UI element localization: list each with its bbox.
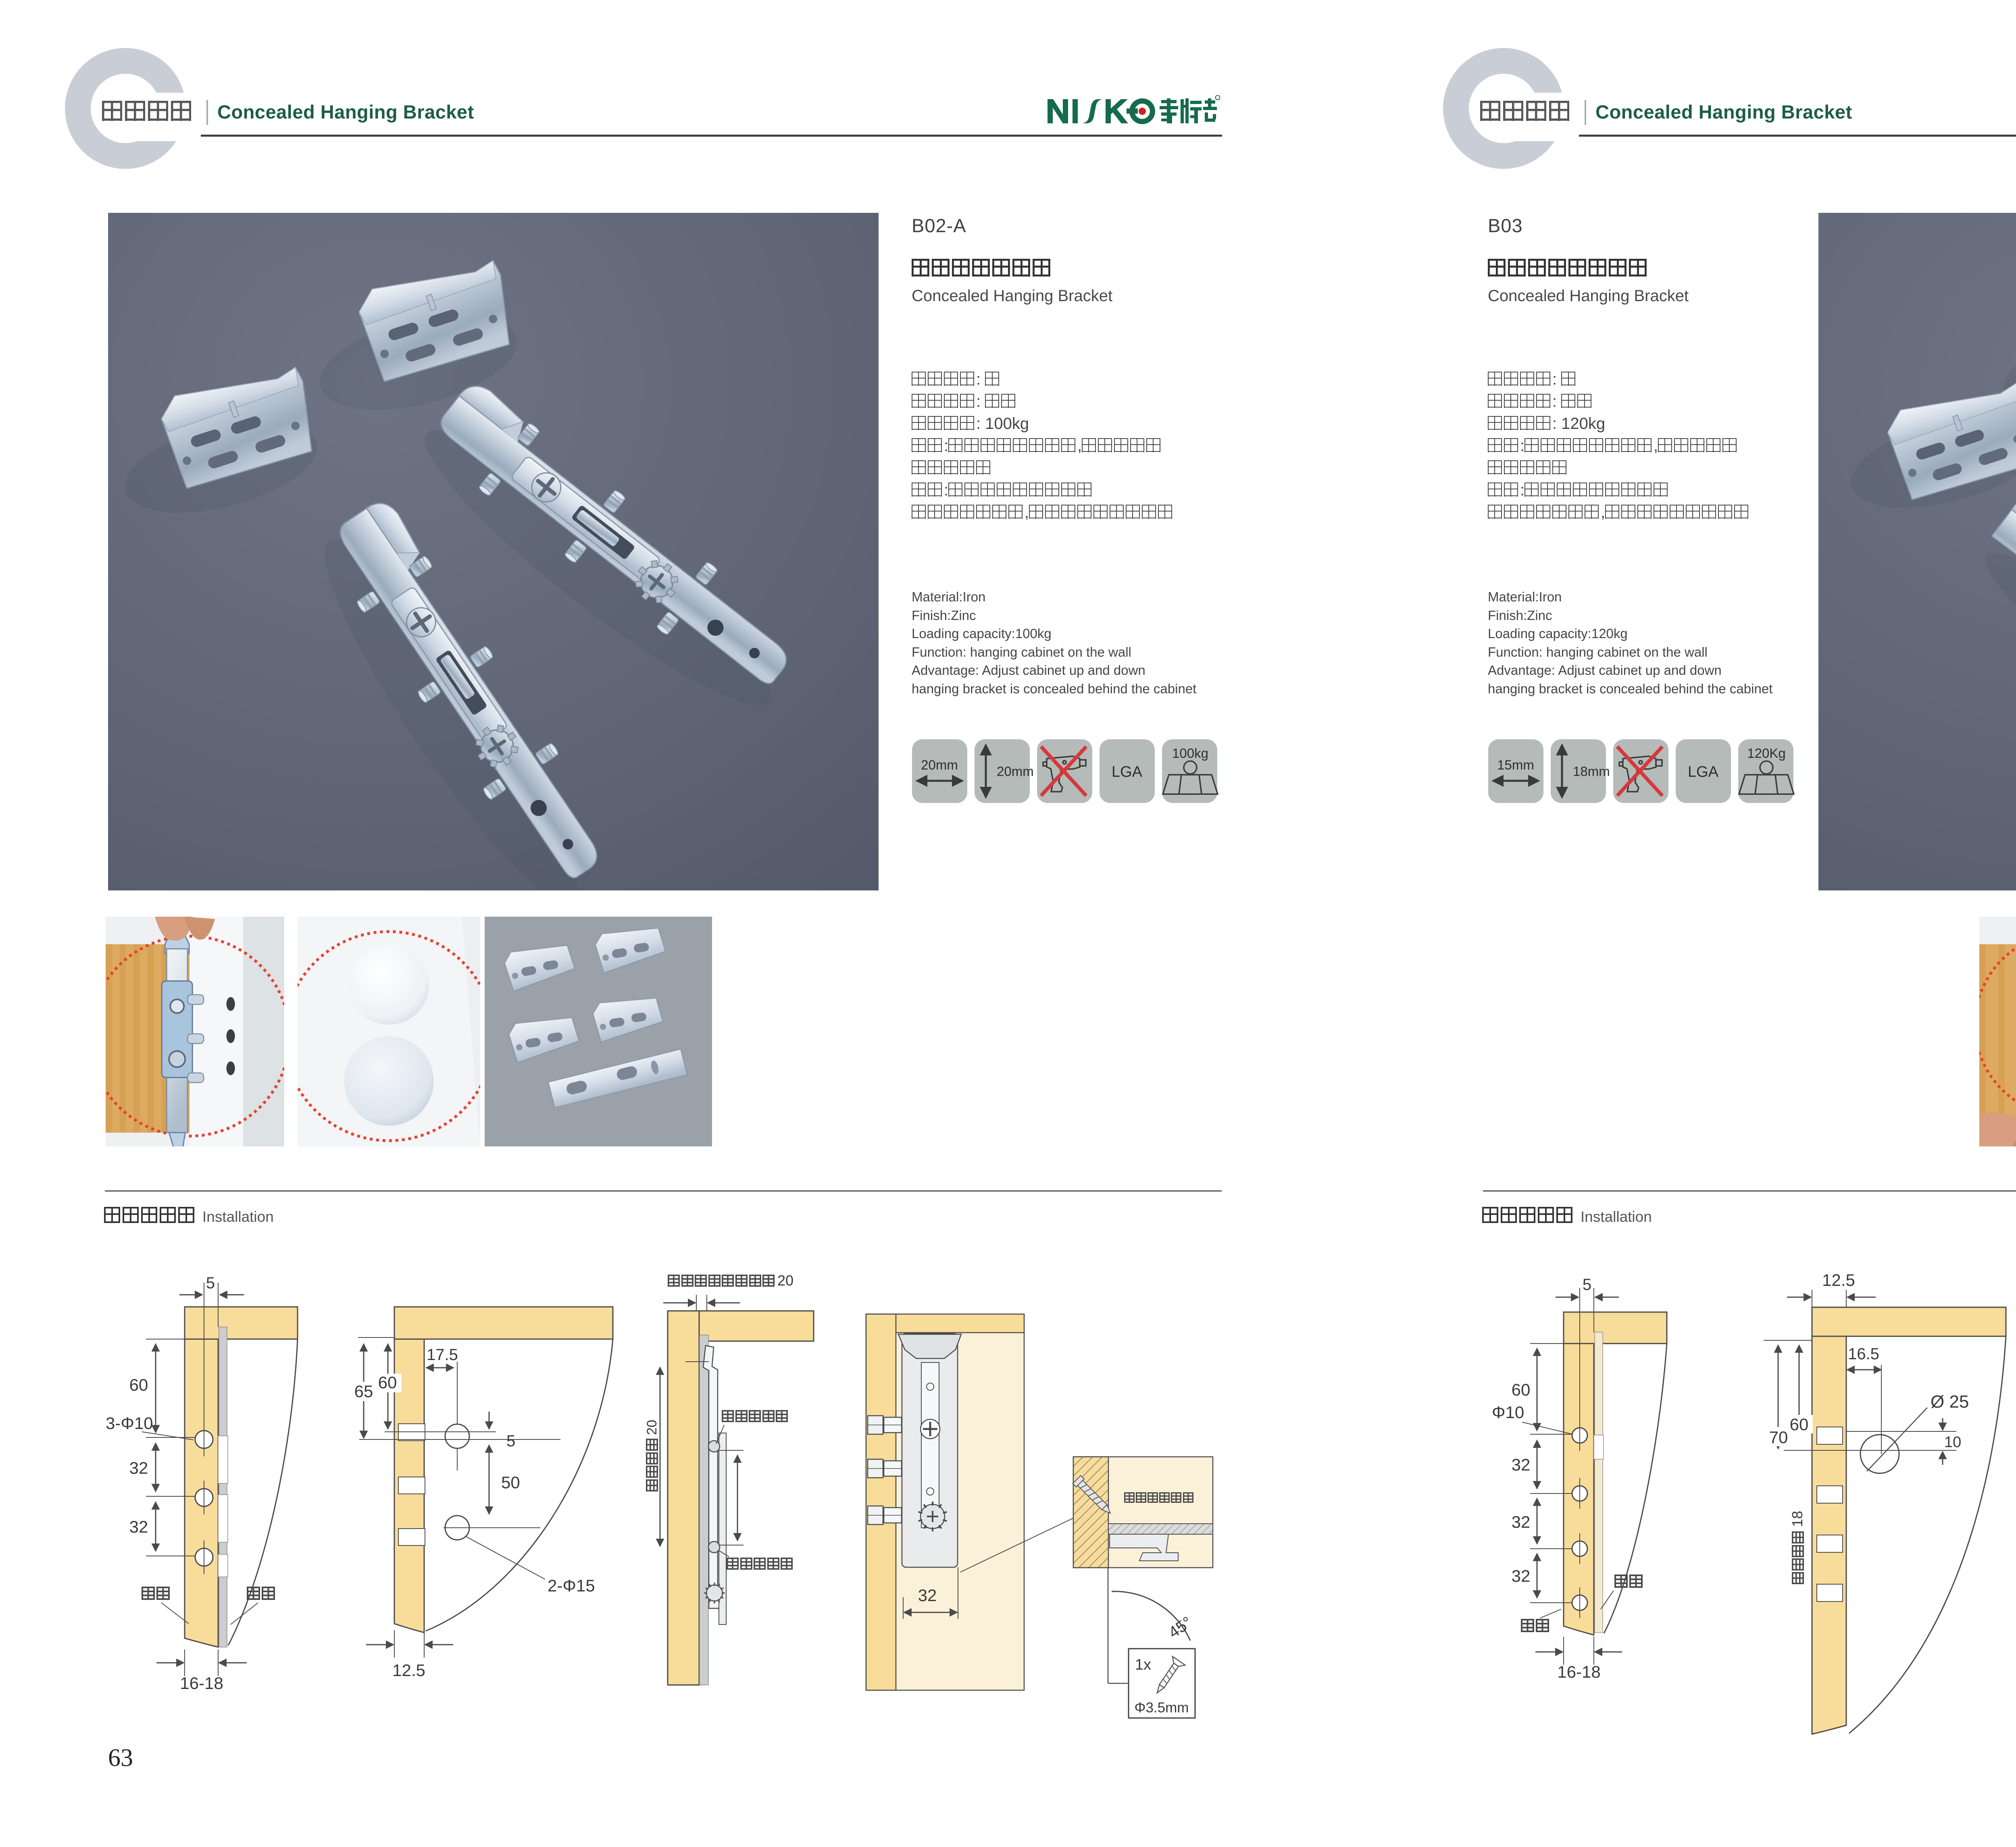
svg-text:32: 32 [1512,1512,1531,1531]
svg-text:16-18: 16-18 [180,1674,223,1693]
svg-text:5: 5 [206,1274,215,1292]
svg-text:Φ3.5mm: Φ3.5mm [1135,1700,1189,1716]
svg-text:12.5: 12.5 [1822,1271,1855,1290]
svg-text:18: 18 [1789,1511,1806,1527]
svg-text:60: 60 [129,1375,148,1394]
svg-text:15mm: 15mm [1497,757,1534,772]
svg-text:18mm: 18mm [1573,764,1610,779]
svg-text:50: 50 [501,1473,520,1492]
svg-text:60: 60 [1512,1380,1531,1399]
svg-text:12.5: 12.5 [392,1661,425,1680]
svg-text:16-18: 16-18 [1557,1662,1600,1681]
svg-text:17.5: 17.5 [427,1346,458,1364]
svg-text:20: 20 [777,1272,793,1289]
svg-text:32: 32 [129,1458,148,1477]
svg-text:1x: 1x [1135,1656,1151,1673]
svg-text:5: 5 [506,1432,515,1450]
svg-text:32: 32 [129,1517,148,1536]
svg-text:Φ10: Φ10 [1492,1403,1524,1422]
svg-text:32: 32 [1512,1455,1531,1474]
svg-text:120Kg: 120Kg [1747,746,1785,761]
svg-text:3-Φ10: 3-Φ10 [106,1414,153,1433]
svg-text:65: 65 [354,1382,373,1401]
svg-text:60: 60 [1790,1415,1809,1434]
svg-text:5: 5 [1583,1276,1591,1294]
svg-text:10: 10 [1944,1434,1961,1451]
svg-text:2-Φ15: 2-Φ15 [548,1576,595,1595]
svg-text:Ø 25: Ø 25 [1931,1392,1969,1412]
svg-text:16.5: 16.5 [1848,1345,1879,1363]
svg-text:100kg: 100kg [1172,746,1208,761]
svg-text:LGA: LGA [1112,763,1143,780]
svg-text:20mm: 20mm [997,764,1034,779]
svg-text:LGA: LGA [1688,763,1719,780]
svg-text:60: 60 [378,1373,397,1392]
svg-text:70: 70 [1769,1428,1788,1447]
svg-text:45°: 45° [1165,1613,1195,1642]
svg-text:20: 20 [644,1420,660,1435]
svg-text:32: 32 [918,1586,937,1605]
svg-text:32: 32 [1512,1566,1531,1585]
svg-text:20mm: 20mm [921,757,958,772]
